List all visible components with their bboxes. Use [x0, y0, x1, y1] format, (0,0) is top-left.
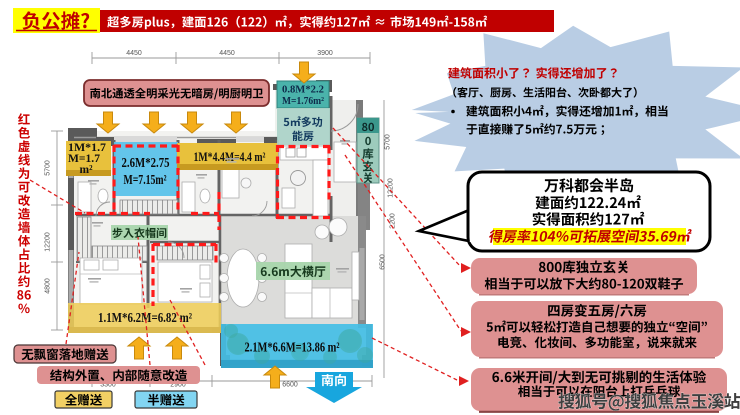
- svg-text:6500: 6500: [380, 254, 387, 270]
- svg-text:4450: 4450: [126, 50, 142, 57]
- svg-text:12200: 12200: [45, 232, 52, 252]
- svg-text:5700: 5700: [385, 134, 392, 150]
- svg-text:5700: 5700: [45, 160, 52, 176]
- svg-text:0.8M*2.2: 0.8M*2.2: [282, 84, 324, 96]
- svg-text:2.6M*2.75: 2.6M*2.75: [122, 155, 170, 170]
- svg-text:4800: 4800: [45, 278, 52, 294]
- svg-text:3900: 3900: [317, 50, 333, 57]
- svg-text:M=1.76m²: M=1.76m²: [282, 95, 325, 107]
- svg-text:2.1M*6.6M=13.86 m²: 2.1M*6.6M=13.86 m²: [245, 340, 340, 355]
- svg-text:m²: m²: [79, 164, 93, 176]
- svg-text:M=7.15m²: M=7.15m²: [124, 172, 167, 187]
- svg-text:4450: 4450: [219, 50, 235, 57]
- svg-text:2200: 2200: [390, 213, 397, 229]
- svg-text:6600: 6600: [282, 382, 298, 389]
- svg-text:12200: 12200: [388, 178, 395, 198]
